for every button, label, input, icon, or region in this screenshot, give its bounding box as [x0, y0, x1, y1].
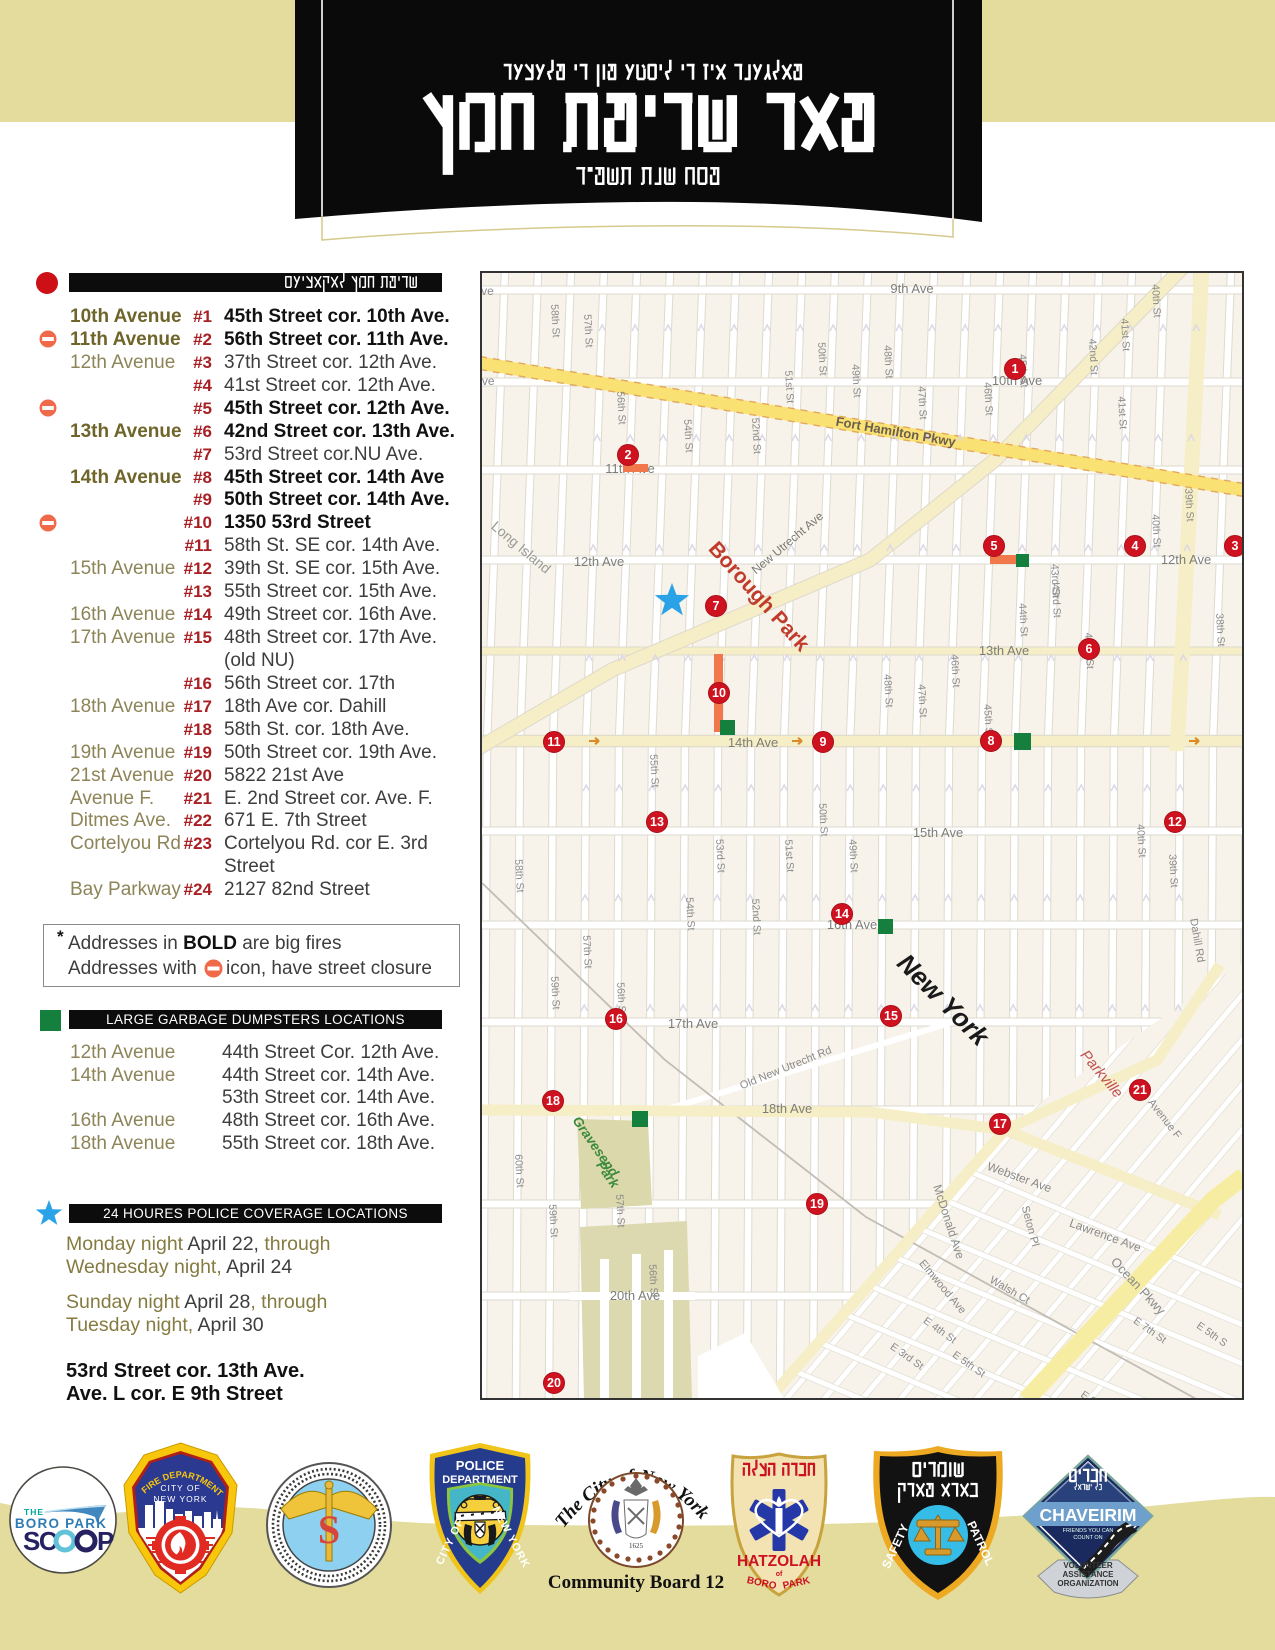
- svg-text:HATZOLAH: HATZOLAH: [737, 1553, 821, 1570]
- svg-text:52nd St: 52nd St: [749, 898, 763, 935]
- svg-text:38th St: 38th St: [1213, 613, 1227, 647]
- svg-text:6: 6: [1086, 642, 1093, 656]
- svg-text:CITY OF: CITY OF: [160, 1483, 200, 1493]
- svg-text:12th Ave: 12th Ave: [1161, 552, 1211, 567]
- svg-text:49th St: 49th St: [846, 839, 860, 873]
- svg-text:2: 2: [625, 448, 632, 462]
- svg-text:40th St: 40th St: [1134, 824, 1148, 858]
- svg-text:51st St: 51st St: [782, 370, 796, 403]
- svg-text:59th St: 59th St: [546, 1204, 560, 1238]
- svg-text:58th St: 58th St: [512, 859, 526, 893]
- svg-text:40th St: 40th St: [1149, 284, 1163, 318]
- svg-text:ASSISTANCE: ASSISTANCE: [1063, 1570, 1115, 1579]
- svg-text:57th St: 57th St: [581, 314, 595, 348]
- svg-text:40th St: 40th St: [1149, 514, 1163, 548]
- svg-text:9: 9: [820, 735, 827, 749]
- svg-text:FRIENDS YOU CAN: FRIENDS YOU CAN: [1063, 1528, 1114, 1534]
- svg-text:1: 1: [1012, 362, 1019, 376]
- svg-text:15: 15: [884, 1009, 898, 1023]
- svg-text:20: 20: [547, 1376, 561, 1390]
- svg-text:14: 14: [835, 907, 849, 921]
- svg-text:56th St: 56th St: [614, 391, 628, 425]
- svg-text:18: 18: [546, 1094, 560, 1108]
- svg-text:9th Ave: 9th Ave: [890, 281, 933, 296]
- svg-text:50th St: 50th St: [816, 803, 830, 837]
- svg-text:5: 5: [991, 539, 998, 553]
- svg-text:17: 17: [993, 1117, 1007, 1131]
- svg-text:46th St: 46th St: [981, 382, 995, 416]
- svg-text:DEPARTMENT: DEPARTMENT: [442, 1474, 518, 1486]
- svg-text:41st St: 41st St: [1115, 396, 1129, 429]
- svg-text:S: S: [318, 1507, 340, 1552]
- svg-text:4: 4: [1132, 539, 1139, 553]
- svg-text:17th Ave: 17th Ave: [668, 1016, 718, 1031]
- svg-text:42nd St: 42nd St: [1086, 338, 1100, 375]
- svg-text:ORGANIZATION: ORGANIZATION: [1057, 1579, 1118, 1588]
- svg-text:47th St: 47th St: [915, 684, 929, 718]
- svg-text:47th St: 47th St: [915, 386, 929, 420]
- svg-text:3: 3: [1232, 539, 1239, 553]
- svg-text:13: 13: [650, 815, 664, 829]
- svg-text:16: 16: [609, 1012, 623, 1026]
- svg-text:53rd St: 53rd St: [713, 839, 727, 874]
- svg-text:52nd St: 52nd St: [749, 417, 763, 454]
- svg-text:57th St: 57th St: [613, 1194, 627, 1228]
- svg-text:13th Ave: 13th Ave: [979, 643, 1029, 658]
- svg-text:9th Ave: 9th Ave: [480, 284, 494, 298]
- svg-text:7: 7: [713, 599, 720, 613]
- svg-text:10th Ave: 10th Ave: [480, 374, 495, 388]
- svg-text:57th St: 57th St: [580, 935, 594, 969]
- svg-text:60th St: 60th St: [512, 1154, 526, 1188]
- svg-text:VOLUNTEER: VOLUNTEER: [1063, 1561, 1113, 1570]
- svg-text:44th St: 44th St: [1016, 603, 1030, 637]
- svg-text:54th St: 54th St: [681, 419, 695, 453]
- svg-text:11: 11: [547, 735, 560, 749]
- svg-text:14th Ave: 14th Ave: [728, 735, 778, 750]
- svg-text:10: 10: [712, 686, 726, 700]
- svg-text:41st St: 41st St: [1118, 318, 1132, 351]
- svg-text:55th St: 55th St: [647, 754, 661, 788]
- svg-text:51st St: 51st St: [782, 839, 796, 872]
- svg-text:CHAVEIRIM: CHAVEIRIM: [1040, 1505, 1137, 1525]
- svg-text:1625: 1625: [629, 1542, 644, 1550]
- svg-text:NEW YORK: NEW YORK: [153, 1494, 207, 1504]
- svg-text:19: 19: [810, 1197, 824, 1211]
- svg-text:56th St: 56th St: [646, 1264, 660, 1298]
- svg-text:POLICE: POLICE: [456, 1458, 505, 1473]
- svg-text:59th St: 59th St: [548, 976, 562, 1010]
- svg-text:48th St: 48th St: [881, 674, 895, 708]
- svg-text:12th Ave: 12th Ave: [574, 554, 624, 569]
- svg-text:48th St: 48th St: [881, 345, 895, 379]
- svg-text:49th St: 49th St: [849, 364, 863, 398]
- svg-text:54th St: 54th St: [683, 897, 697, 931]
- svg-text:12: 12: [1168, 815, 1182, 829]
- svg-text:39th St: 39th St: [1166, 854, 1180, 888]
- svg-text:39th St: 39th St: [1182, 488, 1196, 522]
- svg-text:18th Ave: 18th Ave: [762, 1101, 812, 1116]
- svg-text:8: 8: [988, 734, 995, 748]
- svg-text:15th Ave: 15th Ave: [913, 825, 963, 840]
- svg-text:P: P: [97, 1526, 114, 1556]
- svg-text:COUNT ON: COUNT ON: [1073, 1535, 1102, 1541]
- svg-text:Community Board 12: Community Board 12: [548, 1572, 724, 1593]
- svg-text:SC: SC: [23, 1526, 58, 1556]
- svg-text:43rd St: 43rd St: [1049, 584, 1063, 619]
- svg-text:of: of: [776, 1571, 783, 1578]
- svg-text:58th St: 58th St: [548, 304, 562, 338]
- svg-text:50th St: 50th St: [815, 342, 829, 376]
- svg-text:21: 21: [1133, 1083, 1147, 1097]
- svg-text:46th St: 46th St: [948, 654, 962, 688]
